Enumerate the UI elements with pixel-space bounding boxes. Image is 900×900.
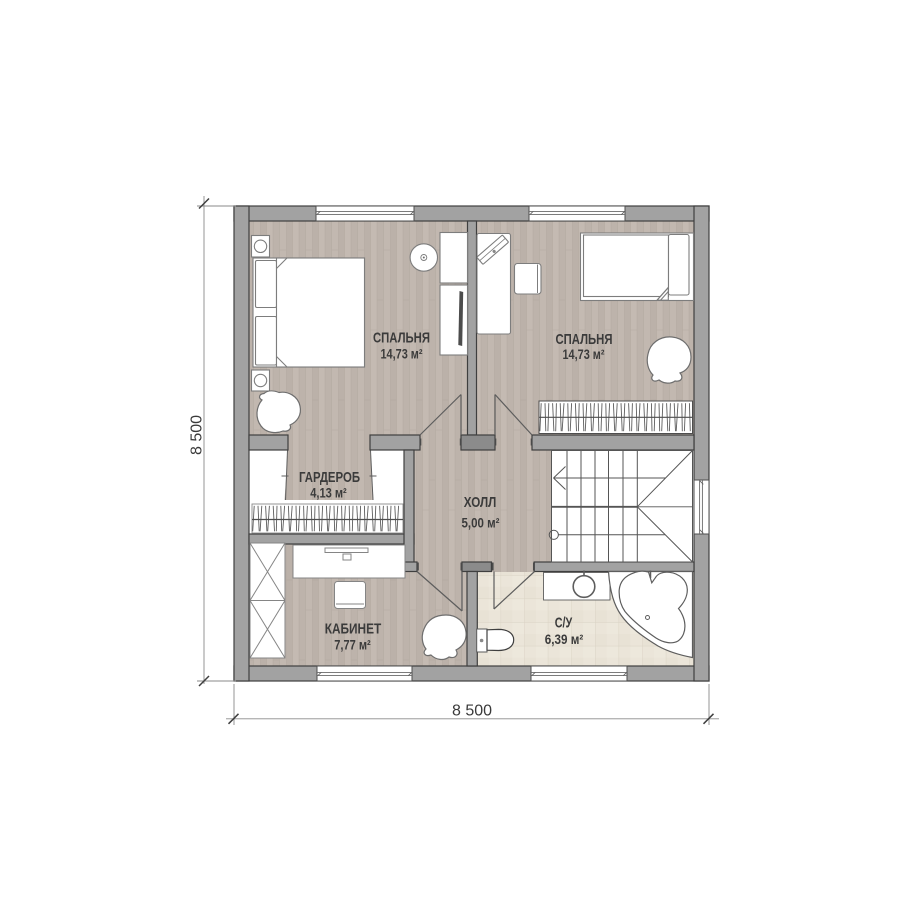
svg-text:С/У: С/У (555, 615, 573, 632)
svg-text:8 500: 8 500 (189, 415, 206, 455)
svg-text:ГАРДЕРОБ: ГАРДЕРОБ (299, 469, 360, 486)
svg-text:6,39 м²: 6,39 м² (545, 632, 584, 647)
svg-text:14,73 м²: 14,73 м² (381, 347, 423, 362)
svg-text:4,13 м²: 4,13 м² (310, 485, 347, 500)
svg-text:7,77 м²: 7,77 м² (334, 638, 371, 653)
svg-text:СПАЛЬНЯ: СПАЛЬНЯ (556, 331, 613, 348)
svg-text:14,73 м²: 14,73 м² (563, 347, 605, 362)
svg-text:8 500: 8 500 (452, 703, 492, 720)
svg-text:СПАЛЬНЯ: СПАЛЬНЯ (373, 330, 430, 347)
svg-text:ХОЛЛ: ХОЛЛ (464, 494, 497, 511)
svg-text:5,00 м²: 5,00 м² (462, 515, 500, 530)
svg-text:КАБИНЕТ: КАБИНЕТ (325, 621, 382, 638)
